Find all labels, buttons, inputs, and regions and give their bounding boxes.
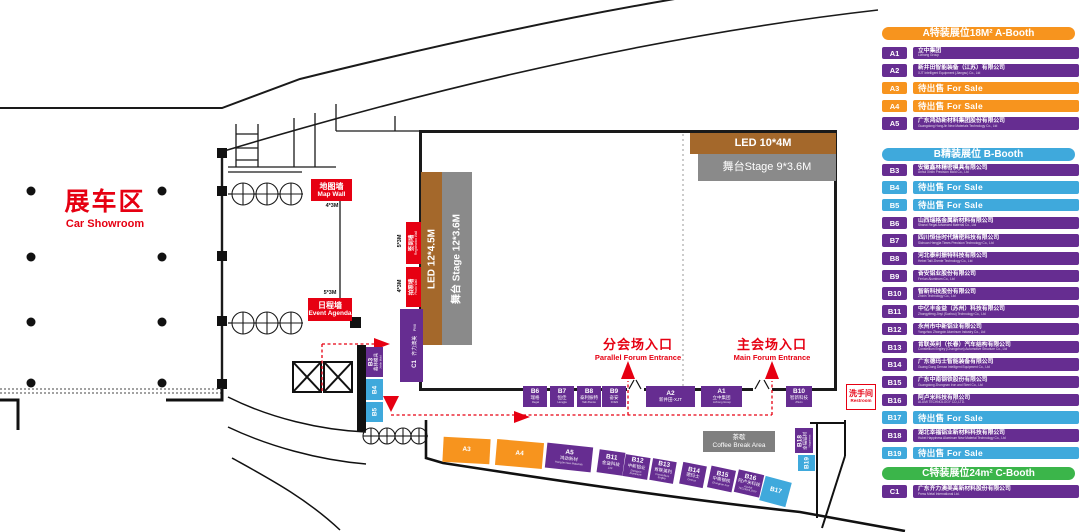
legend-row-b12[interactable]: 永州市中新铝业有限公司Yongzhou Zhongxin Aluminum In… xyxy=(913,323,1079,336)
led-screen-top-label: LED 10*4M xyxy=(735,137,792,149)
legend-badge-b9[interactable]: B9 xyxy=(882,270,907,283)
booth-a4-map[interactable]: A4 xyxy=(495,439,544,469)
legend-row-b4[interactable]: 待出售 For Sale xyxy=(913,181,1079,194)
route-arrow-right-2 xyxy=(514,411,530,423)
legend-header-a: A特装展位18M² A-Booth xyxy=(882,27,1075,40)
service-wall xyxy=(357,345,366,431)
booth-b14-map[interactable]: B14德玛士Demax xyxy=(679,462,707,488)
legend-company-en: Zhongyifeng Jinyi (Suzhou) Technology Co… xyxy=(918,313,1079,317)
car-showroom-label: 展车区 Car Showroom xyxy=(45,182,165,230)
legend-row-b11[interactable]: 中亿丰金益（苏州）科技有限公司Zhongyifeng Jinyi (Suzhou… xyxy=(913,305,1079,318)
legend-badge-a3[interactable]: A3 xyxy=(882,82,907,95)
legend-forsale-label: 待出售 For Sale xyxy=(918,412,1079,424)
legend-company-en: Zhixin Technology Co., Ltd xyxy=(918,295,1079,299)
registration-wall-en: Registration Wall xyxy=(415,231,419,255)
main-entrance-arrow xyxy=(765,361,779,379)
legend-row-b7[interactable]: 四川恒佳时代精密科技有限公司Sichuan Hengjia Times Prec… xyxy=(913,234,1079,247)
parallel-entrance-en: Parallel Forum Entrance xyxy=(577,353,699,362)
legend-company-en: Fen'an Aluminum Co., Ltd xyxy=(918,278,1079,282)
outer-top-wall xyxy=(0,0,705,108)
booth-a3-map[interactable]: A3 xyxy=(442,437,490,464)
legend-company-en: Hebei Taili Zhente Technology Co., Ltd xyxy=(918,260,1079,264)
legend-row-b10[interactable]: 智新科技股份有限公司Zhixin Technology Co., Ltd xyxy=(913,287,1079,300)
booth-a1-map[interactable]: A1立中集团Lizhong Group xyxy=(701,386,742,407)
legend-badge-c1[interactable]: C1 xyxy=(882,485,907,498)
legend-company-en: Anhui Xinlin Precision Mold Co., Ltd xyxy=(918,171,1079,175)
main-entrance-label: 主会场入口 Main Forum Entrance xyxy=(711,334,833,362)
legend-badge-b10[interactable]: B10 xyxy=(882,287,907,300)
legend-row-b19[interactable]: 待出售 For Sale xyxy=(913,447,1079,460)
legend-row-b16[interactable]: 阿卢米科技有限公司ALUMI TECHNOLOGY CO.,LTD. xyxy=(913,394,1079,407)
legend-company-en: Lizhong Group xyxy=(918,54,1079,58)
legend-forsale-label: 待出售 For Sale xyxy=(918,100,1079,112)
registration-wall-sign: 签到墙 Registration Wall xyxy=(406,222,421,264)
legend-row-a1[interactable]: 立中集团Lizhong Group xyxy=(913,47,1079,60)
legend-row-c1[interactable]: 广东齐力澳美高新材料股份有限公司Press Metal Internationa… xyxy=(913,485,1079,498)
booth-c1-id: C1 xyxy=(412,360,418,368)
led-screen-left: LED 12*4.5M xyxy=(421,172,442,345)
legend-company-en: Shanxi Regal Advanced Material Co., Ltd xyxy=(918,224,1079,228)
booth-en: Taili Zhente xyxy=(581,401,597,404)
booth-c1-zh: 齐力澳美 xyxy=(412,335,418,355)
booth-b4-map[interactable]: B4 xyxy=(366,379,383,400)
driveway-curves xyxy=(228,397,366,530)
stage-left: 舞台 Stage 12*3.6M xyxy=(442,172,472,345)
booth-id: B5 xyxy=(371,408,378,416)
car-showroom-zh: 展车区 xyxy=(45,182,165,218)
map-wall-sign: 地图墙 Map Wall xyxy=(311,179,352,201)
stage-top-label: 舞台Stage 9*3.6M xyxy=(723,161,812,173)
legend-badge-b6[interactable]: B6 xyxy=(882,217,907,230)
legend-badge-b4[interactable]: B4 xyxy=(882,181,907,194)
legend-company-en: Yongzhou Zhongxin Aluminum Industry Co.,… xyxy=(918,331,1079,335)
parallel-entrance-zh: 分会场入口 xyxy=(577,334,699,353)
legend-badge-b8[interactable]: B8 xyxy=(882,252,907,265)
legend-row-b17[interactable]: 待出售 For Sale xyxy=(913,411,1079,424)
legend-forsale-label: 待出售 For Sale xyxy=(918,181,1079,193)
booth-b12-map[interactable]: B12中新铝业Zhongxin Aluminum xyxy=(622,454,650,480)
booth-en: Regal xyxy=(531,401,539,404)
booth-en: Lizhong Group xyxy=(713,401,731,404)
registration-wall-size: 5*3M xyxy=(397,231,403,251)
booth-en: Happiness xyxy=(809,432,812,448)
legend-header-b: B精装展位 B-Booth xyxy=(882,148,1075,161)
booth-a5-map[interactable]: A5鸿劲新材HongJin New Materials xyxy=(545,443,593,473)
legend-row-a3[interactable]: 待出售 For Sale xyxy=(913,82,1079,95)
legend-badge-b12[interactable]: B12 xyxy=(882,323,907,336)
booth-c1-map[interactable]: C1 齐力澳美 PMI xyxy=(400,309,423,382)
legend-company-en: ALUMI TECHNOLOGY CO.,LTD. xyxy=(918,401,1079,405)
legend-badge-b11[interactable]: B11 xyxy=(882,305,907,318)
photo-wall-sign: 拍照墙 Photo Wall xyxy=(406,267,421,307)
booth-id: A4 xyxy=(515,450,524,458)
legend-company-en: Hubei Happiness Aluminum New Material Te… xyxy=(918,437,1079,441)
coffee-break-en: Coffee Break Area xyxy=(703,442,775,450)
parallel-entrance-label: 分会场入口 Parallel Forum Entrance xyxy=(577,334,699,362)
led-screen-top: LED 10*4M xyxy=(690,133,836,154)
booth-b19-map[interactable]: B19 xyxy=(798,455,815,471)
event-agenda-zh: 日程墙 xyxy=(308,301,352,310)
legend-company-en: XJT Intelligent Equipment (Jiangsu) Co.,… xyxy=(918,72,1079,76)
legend-header-c: C特装展位24m² C-Booth xyxy=(882,467,1075,480)
booth-c1-en: PMI xyxy=(412,324,417,331)
map-wall-size: 4*3M xyxy=(321,203,343,209)
car-showroom-en: Car Showroom xyxy=(45,218,165,230)
floor-plan-canvas: 展车区 Car Showroom 地图墙 Map Wall 4*3M 5*3M … xyxy=(0,0,1080,532)
booth-b13-map[interactable]: B13肯联英利Constellium Engley xyxy=(649,458,676,484)
legend-row-b18[interactable]: 湖北幸福铝业新材料科技有限公司Hubei Happiness Aluminum … xyxy=(913,429,1079,442)
legend-company-en: Guangdong Zhongnan Iron and Steel Co., L… xyxy=(918,384,1079,388)
legend-row-a4[interactable]: 待出售 For Sale xyxy=(913,100,1079,113)
legend-badge-b5[interactable]: B5 xyxy=(882,199,907,212)
legend-row-b3[interactable]: 安徽鑫林精密模具有限公司Anhui Xinlin Precision Mold … xyxy=(913,164,1079,177)
event-agenda-sign: 日程墙 Event Agenda xyxy=(308,298,352,321)
booth-b9-map[interactable]: B9奋安FOEN xyxy=(602,386,626,407)
legend-row-b8[interactable]: 河北泰利振特科技有限公司Hebei Taili Zhente Technolog… xyxy=(913,252,1079,265)
legend-row-b6[interactable]: 山西瑞格金属新材料有限公司Shanxi Regal Advanced Mater… xyxy=(913,217,1079,230)
booth-en: Demax xyxy=(686,478,698,483)
booth-en: Hengjia xyxy=(557,401,566,404)
legend-badge-b17[interactable]: B17 xyxy=(882,411,907,424)
legend-company-en: Press Metal International Ltd. xyxy=(918,493,1079,497)
stage-left-label: 舞台 Stage 12*3.6M xyxy=(452,213,463,303)
legend-badge-a1[interactable]: A1 xyxy=(882,47,907,60)
legend-row-b14[interactable]: 广东德玛士智能装备有限公司Guang Dong Demax Intelligen… xyxy=(913,358,1079,371)
legend-badge-a4[interactable]: A4 xyxy=(882,100,907,113)
booth-b5-map[interactable]: B5 xyxy=(366,402,383,422)
booth-b6-map[interactable]: B6瑞格Regal xyxy=(523,386,547,407)
legend-company-en: Guang Dong Demax Intelligent Equipment C… xyxy=(918,366,1079,370)
legend-forsale-label: 待出售 For Sale xyxy=(918,82,1079,94)
booth-b8-map[interactable]: B8泰利振特Taili Zhente xyxy=(577,386,601,407)
event-agenda-size: 5*3M xyxy=(319,290,341,296)
inner-top-wall xyxy=(224,10,878,151)
booth-b18-map[interactable]: B18幸福铝材Happiness xyxy=(795,428,813,453)
legend-badge-b3[interactable]: B3 xyxy=(882,164,907,177)
booth-b7-map[interactable]: B7恒佳Hengjia xyxy=(550,386,574,407)
legend-badge-b13[interactable]: B13 xyxy=(882,341,907,354)
booth-b3-map[interactable]: B3鑫林模具Xinlin Mold xyxy=(366,347,383,377)
legend-badge-b14[interactable]: B14 xyxy=(882,358,907,371)
legend-badge-b19[interactable]: B19 xyxy=(882,447,907,460)
legend-row-a2[interactable]: 新井田智能装备（江苏）有限公司XJT Intelligent Equipment… xyxy=(913,64,1079,77)
main-entrance-zh: 主会场入口 xyxy=(711,334,833,353)
legend-badge-b7[interactable]: B7 xyxy=(882,234,907,247)
booth-id: B19 xyxy=(803,457,810,469)
bottom-left-walls xyxy=(0,389,222,430)
booth-zh: 新井田-XJT xyxy=(659,398,682,403)
booth-id: B4 xyxy=(371,385,378,393)
legend-company-en: Sichuan Hengjia Times Precision Technolo… xyxy=(918,242,1079,246)
legend-row-b5[interactable]: 待出售 For Sale xyxy=(913,199,1079,212)
right-side-walls xyxy=(810,420,845,528)
legend-forsale-label: 待出售 For Sale xyxy=(918,199,1079,211)
legend-row-b9[interactable]: 奋安铝业股份有限公司Fen'an Aluminum Co., Ltd xyxy=(913,270,1079,283)
stage-top: 舞台Stage 9*3.6M xyxy=(698,154,836,181)
booth-en: Zhixin xyxy=(791,401,807,404)
coffee-break-area: 茶歇 Coffee Break Area xyxy=(703,431,775,452)
booth-en: Xinlin Mold xyxy=(379,354,382,370)
legend-company-en: Guangdong HongJin New Materials Technolo… xyxy=(918,125,1079,129)
photo-wall-en: Photo Wall xyxy=(415,279,419,296)
route-arrow-down xyxy=(383,396,399,412)
booth-id: B17 xyxy=(769,487,782,497)
legend-badge-b15[interactable]: B15 xyxy=(882,376,907,389)
legend-row-a5[interactable]: 广东鸿劲新材料集团股份有限公司Guangdong HongJin New Mat… xyxy=(913,117,1079,130)
legend-row-b13[interactable]: 肯联英利（长春）汽车结构有限公司Constellium Engley (Chan… xyxy=(913,341,1079,354)
stairs-and-rooms xyxy=(228,104,428,436)
main-entrance-en: Main Forum Entrance xyxy=(711,353,833,362)
restroom-en: Restroom xyxy=(847,399,875,404)
map-wall-zh: 地图墙 xyxy=(311,182,352,191)
showroom-dotted-boundary xyxy=(0,389,222,393)
legend-panel: A特装展位18M² A-BoothA1立中集团Lizhong GroupA2新井… xyxy=(882,0,1075,532)
event-agenda-en: Event Agenda xyxy=(308,310,352,317)
legend-row-b15[interactable]: 广东中南钢铁股份有限公司Guangdong Zhongnan Iron and … xyxy=(913,376,1079,389)
legend-badge-a5[interactable]: A5 xyxy=(882,117,907,130)
legend-forsale-label: 待出售 For Sale xyxy=(918,447,1079,459)
legend-company-en: Constellium Engley (Changchun) Automotiv… xyxy=(918,348,1079,352)
led-screen-left-label: LED 12*4.5M xyxy=(426,228,437,288)
legend-badge-a2[interactable]: A2 xyxy=(882,64,907,77)
legend-company-zh: 立中集团 xyxy=(918,48,1079,55)
coffee-break-zh: 茶歇 xyxy=(703,434,775,442)
map-wall-en: Map Wall xyxy=(311,191,352,198)
legend-badge-b16[interactable]: B16 xyxy=(882,394,907,407)
booth-id: A3 xyxy=(462,447,471,454)
booth-en: FOEN xyxy=(610,401,618,404)
booth-a2-map[interactable]: A2新井田-XJT xyxy=(646,386,695,407)
booth-b10-map[interactable]: B10智新科技Zhixin xyxy=(786,386,812,407)
photo-wall-size: 4*3M xyxy=(397,276,403,296)
restroom-sign: 洗手间 Restroom xyxy=(846,384,876,410)
legend-badge-b18[interactable]: B18 xyxy=(882,429,907,442)
booth-b11-map[interactable]: B11金益科技ZJF xyxy=(597,449,626,475)
parallel-entrance-arrow xyxy=(621,361,635,379)
